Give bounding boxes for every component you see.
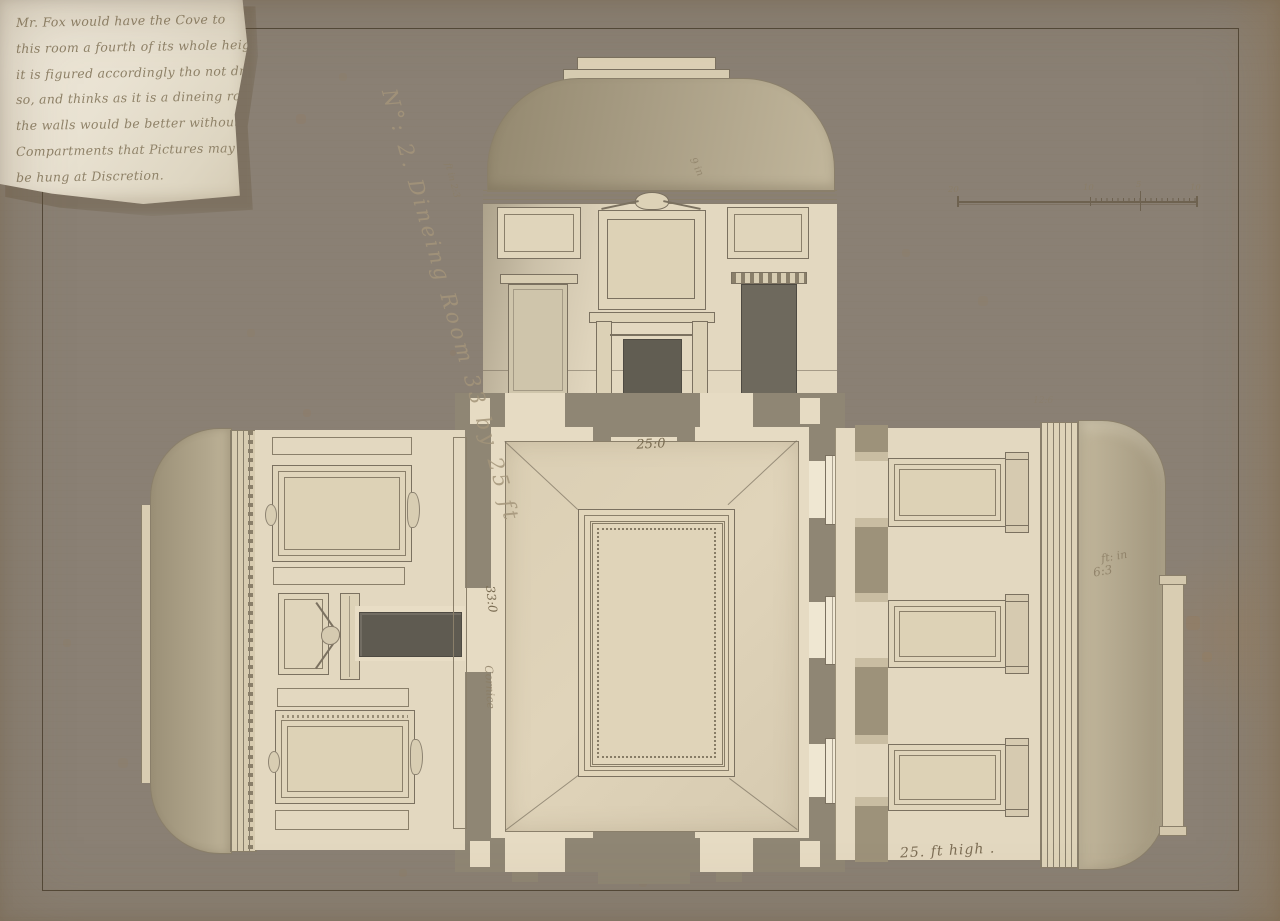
window-1-mullion bbox=[832, 456, 833, 524]
rw-pier-2-cap-t bbox=[855, 518, 888, 527]
right-overdoor-inner bbox=[734, 214, 802, 252]
lw-fireplace-opening bbox=[359, 612, 462, 657]
fireplace-opening bbox=[623, 339, 682, 396]
scale-label-5: 5 bbox=[1136, 180, 1141, 190]
rw-pil2-base bbox=[1006, 666, 1028, 667]
lw-strip-2 bbox=[273, 567, 405, 585]
rw-pier-1 bbox=[855, 425, 888, 461]
left-overdoor-inner bbox=[504, 214, 574, 252]
overmantel-picture bbox=[607, 219, 695, 299]
rw-wp1-field bbox=[899, 469, 996, 516]
rw-window-panel-1 bbox=[888, 458, 1007, 527]
scale-label-10a: 10 bbox=[1083, 183, 1094, 193]
left-overdoor-panel bbox=[497, 207, 581, 259]
lw-compartment-1-picture bbox=[284, 477, 400, 550]
ceiling-panel-bead bbox=[597, 528, 716, 758]
rw-pier-1-cap bbox=[855, 452, 888, 461]
rw-strip-cap-top bbox=[1159, 575, 1187, 585]
scale-bar-line2 bbox=[957, 204, 1197, 205]
ceiling-panel bbox=[578, 509, 735, 777]
lw-comp2-carving-right bbox=[410, 739, 423, 775]
lw-overmantel-inner bbox=[284, 599, 323, 669]
lw-comp1-carving-left bbox=[265, 504, 277, 526]
rw-pil2-cap bbox=[1006, 601, 1028, 602]
floor-plan: 25:0 33:0 Cornice bbox=[455, 393, 845, 872]
lw-edge-panel bbox=[453, 437, 467, 829]
rw-pilaster-3 bbox=[1005, 738, 1029, 817]
lw-compartment-2-picture bbox=[287, 726, 403, 792]
plan-stub-south-left bbox=[512, 872, 538, 882]
rw-pier-3-cap-t bbox=[855, 658, 888, 667]
note-line-2: this room a fourth of its whole height bbox=[16, 36, 250, 59]
plan-pilaster-sw bbox=[470, 841, 490, 867]
plan-door-bottom-right bbox=[700, 838, 753, 872]
lw-mantel-line bbox=[349, 596, 350, 677]
drawing-sheet: ft in 2:3 9 in 20 10 5 10 bbox=[0, 0, 1280, 921]
rw-pier-3 bbox=[855, 658, 888, 744]
lw-putto-figure bbox=[321, 626, 340, 645]
scale-label-10b: 10 bbox=[1190, 183, 1201, 193]
rw-pilaster-2 bbox=[1005, 594, 1029, 674]
lw-bottom-strip bbox=[275, 810, 409, 830]
rw-wp3-field bbox=[899, 755, 996, 800]
plan-width-dim: 25:0 bbox=[623, 436, 680, 454]
rw-window-panel-3 bbox=[888, 744, 1007, 811]
lw-strip-3 bbox=[277, 688, 409, 707]
rw-faint-dim: 12:6 bbox=[1033, 396, 1053, 406]
plan-door-bottom-left bbox=[505, 838, 565, 872]
rw-cove-band bbox=[1078, 420, 1166, 870]
lw-comp2-carving-left bbox=[268, 751, 280, 773]
cove-section bbox=[487, 78, 835, 192]
fireplace-jamb-left bbox=[596, 321, 612, 396]
fireplace-jamb-right bbox=[692, 321, 708, 396]
window-2-mullion bbox=[832, 597, 833, 664]
rw-pil3-base bbox=[1006, 809, 1028, 810]
scale-minor-ticks bbox=[1090, 198, 1197, 202]
note-line-7: be hung at Discretion. bbox=[16, 164, 250, 187]
lw-comp2-garland bbox=[282, 715, 408, 718]
scale-label-20: 20 bbox=[948, 185, 959, 195]
rw-pier-4-cap bbox=[855, 797, 888, 806]
rw-pilaster-1 bbox=[1005, 452, 1029, 533]
rw-cornice-band bbox=[1040, 422, 1080, 868]
rw-pier-3-cap-b bbox=[855, 735, 888, 744]
left-door-cornice bbox=[500, 274, 578, 284]
left-cornice-band bbox=[230, 430, 257, 852]
right-door-open bbox=[741, 284, 797, 396]
scale-tick-left bbox=[957, 196, 959, 207]
plan-door-top-left bbox=[505, 393, 565, 427]
pasted-note: Mr. Fox would have the Cove to this room… bbox=[0, 0, 250, 204]
plan-cornice-label: Cornice bbox=[482, 665, 497, 709]
rw-wp2-field bbox=[899, 611, 996, 657]
rw-fold-strip bbox=[835, 428, 856, 860]
right-wall-elevation: ft: in 6:3 12:6 bbox=[835, 408, 1185, 870]
rw-flat-ceiling-strip bbox=[1162, 582, 1184, 827]
left-wall-elevation bbox=[140, 420, 465, 860]
window-3-mullion bbox=[832, 739, 833, 803]
right-door-cornice-dentils bbox=[731, 272, 807, 284]
note-line-6: Compartments that Pictures may bbox=[16, 139, 250, 162]
left-door bbox=[508, 284, 568, 396]
note-line-4: so, and thinks as it is a dineing room bbox=[16, 87, 250, 110]
lw-top-strip bbox=[272, 437, 412, 455]
chimney-wall-face bbox=[483, 204, 837, 394]
plan-stub-south-center bbox=[598, 872, 690, 884]
fireplace-lintel bbox=[610, 334, 692, 336]
plan-stub-south-right bbox=[716, 872, 742, 882]
note-line-1: Mr. Fox would have the Cove to bbox=[16, 10, 250, 33]
rw-strip-cap-bottom bbox=[1159, 826, 1187, 836]
note-line-3: it is figured accordingly tho not drawn bbox=[16, 61, 250, 84]
plan-pilaster-se bbox=[800, 841, 820, 867]
left-door-leaf bbox=[513, 289, 563, 391]
rw-pil1-base bbox=[1006, 525, 1028, 526]
overmantel-frame bbox=[598, 210, 706, 310]
lw-comp1-carving-right bbox=[407, 492, 420, 528]
lw-compartment-1 bbox=[272, 465, 412, 562]
chimney-breast-top bbox=[593, 427, 695, 437]
scale-bar: 20 10 5 10 bbox=[950, 183, 1202, 209]
rw-pier-2 bbox=[855, 518, 888, 602]
rw-pier-2-cap-b bbox=[855, 593, 888, 602]
left-cornice-dentils bbox=[248, 431, 253, 851]
lw-compartment-2 bbox=[275, 710, 415, 804]
plan-door-top-right bbox=[700, 393, 753, 427]
rw-pier-4 bbox=[855, 797, 888, 862]
rw-window-panel-2 bbox=[888, 600, 1007, 668]
note-line-5: the walls would be better without bbox=[16, 113, 250, 136]
rw-pil3-cap bbox=[1006, 745, 1028, 746]
left-cove-band bbox=[150, 428, 232, 854]
plan-pilaster-ne bbox=[800, 398, 820, 424]
plan-length-dim: 33:0 bbox=[483, 585, 500, 613]
rw-pil1-cap bbox=[1006, 459, 1028, 460]
left-wall-face bbox=[255, 430, 465, 850]
right-overdoor-panel bbox=[727, 207, 809, 259]
